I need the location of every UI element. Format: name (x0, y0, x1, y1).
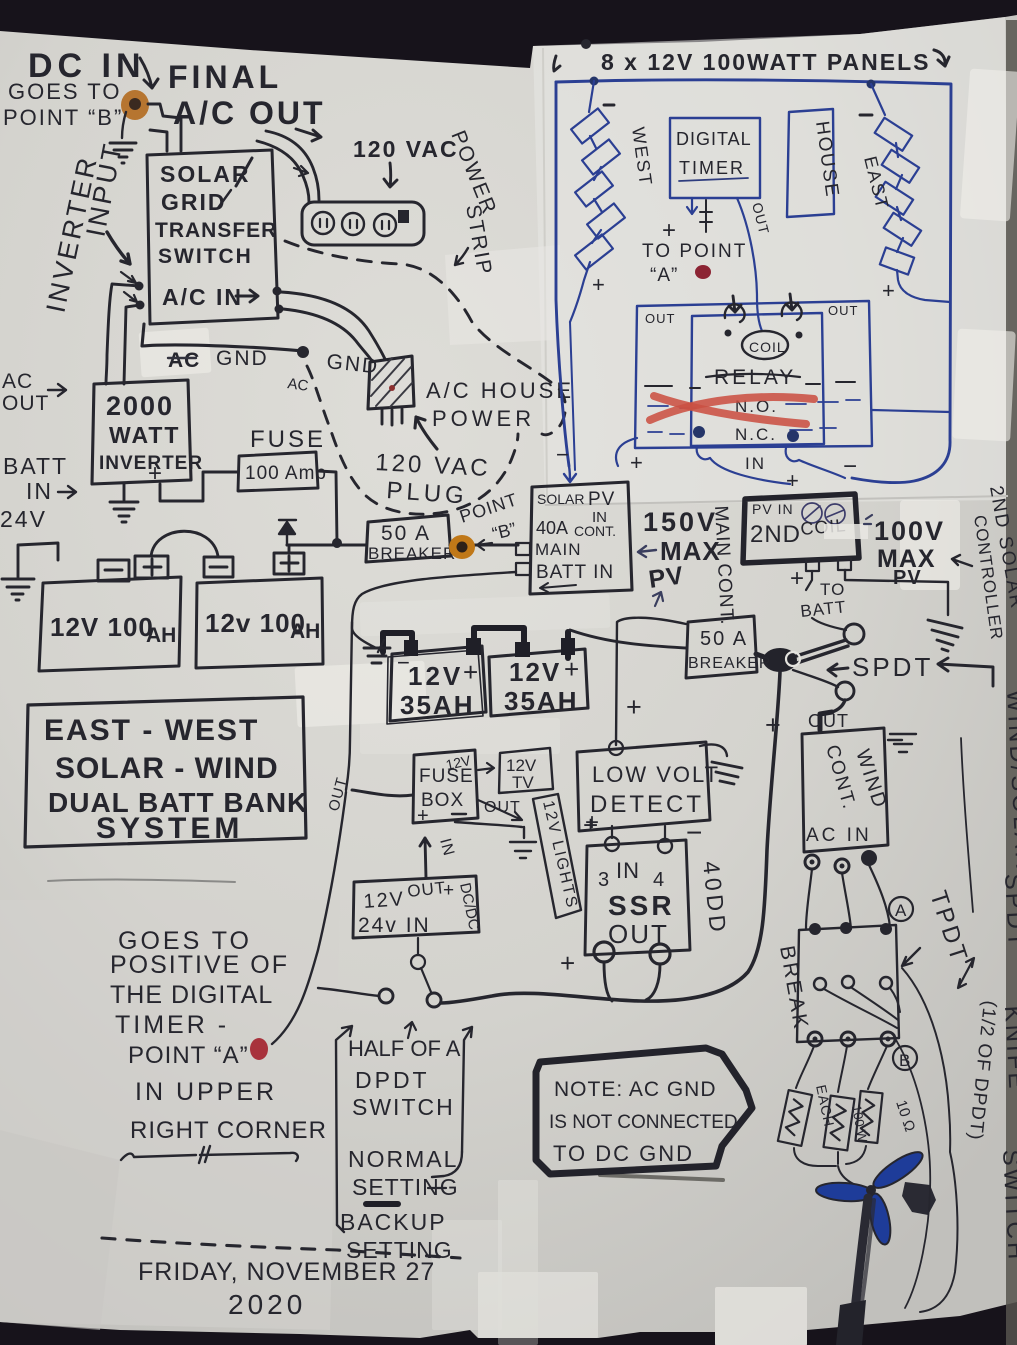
svg-text:+: + (592, 272, 605, 297)
svg-text:BREAKER: BREAKER (688, 655, 771, 672)
svg-text:DETECT: DETECT (590, 791, 704, 818)
svg-text:4: 4 (653, 869, 664, 891)
svg-text:IN UPPER: IN UPPER (135, 1078, 277, 1106)
svg-text:FUSE: FUSE (250, 426, 326, 453)
svg-text:2000: 2000 (106, 391, 174, 421)
svg-text:PV: PV (647, 561, 686, 594)
svg-text:12V 100: 12V 100 (50, 612, 154, 642)
svg-text:50 A: 50 A (381, 522, 431, 545)
svg-text:+: + (585, 809, 599, 836)
svg-text:A/C IN: A/C IN (162, 284, 243, 310)
svg-text:150V: 150V (643, 507, 718, 537)
svg-text:+: + (790, 565, 804, 592)
svg-text:PLUG: PLUG (386, 477, 469, 510)
svg-text:+: + (662, 217, 676, 244)
svg-text:AH: AH (290, 620, 320, 643)
svg-text:SSR: SSR (608, 890, 675, 921)
svg-text:THE DIGITAL: THE DIGITAL (110, 981, 273, 1009)
svg-text:GOES TO: GOES TO (8, 79, 121, 104)
svg-text:AC: AC (2, 370, 33, 393)
svg-text:IN: IN (616, 858, 640, 883)
svg-text:HALF OF A: HALF OF A (348, 1036, 461, 1061)
svg-text:+: + (463, 657, 478, 687)
svg-text:SWITCH: SWITCH (352, 1094, 455, 1120)
svg-text:TIMER: TIMER (679, 158, 745, 178)
svg-text:100V: 100V (874, 516, 945, 546)
svg-text:120 VAC: 120 VAC (353, 136, 459, 162)
svg-text:POSITIVE OF: POSITIVE OF (110, 951, 289, 979)
svg-text:IN: IN (745, 454, 766, 473)
svg-text:GND: GND (216, 347, 269, 370)
svg-text:DIGITAL: DIGITAL (676, 129, 752, 149)
svg-text:TO POINT: TO POINT (642, 241, 747, 262)
svg-text:−: − (843, 453, 857, 480)
svg-text:PV IN: PV IN (752, 501, 794, 517)
svg-text:SWITCH: SWITCH (158, 245, 253, 268)
svg-text:+: + (560, 948, 575, 978)
svg-text:A/C OUT: A/C OUT (173, 95, 326, 131)
svg-text:24V: 24V (0, 506, 47, 532)
svg-text:TV: TV (512, 773, 534, 792)
svg-text:IS NOT CONNECTED: IS NOT CONNECTED (549, 1112, 738, 1133)
svg-text:+: + (417, 805, 429, 827)
svg-text:IN: IN (26, 478, 53, 504)
svg-text:PV: PV (893, 567, 922, 589)
svg-text:GRID: GRID (161, 189, 227, 215)
svg-text:24v IN: 24v IN (358, 914, 431, 937)
svg-text:TO DC GND: TO DC GND (553, 1141, 694, 1166)
svg-text:WATT: WATT (109, 422, 180, 448)
svg-text:+: + (882, 278, 895, 303)
svg-text:BACKUP: BACKUP (340, 1209, 447, 1235)
svg-text:EAST - WEST: EAST - WEST (44, 714, 259, 747)
svg-text:RELAY: RELAY (714, 366, 796, 389)
svg-text:BREAKER: BREAKER (368, 544, 456, 563)
svg-text:OUT: OUT (808, 711, 849, 731)
svg-text:MAIN: MAIN (535, 540, 582, 559)
svg-text:SOLAR - WIND: SOLAR - WIND (55, 752, 279, 785)
svg-text:COIL: COIL (749, 339, 786, 355)
svg-text:POINT “A”: POINT “A” (128, 1042, 249, 1069)
svg-text:A: A (895, 901, 907, 920)
svg-text:100 Amp: 100 Amp (245, 463, 327, 484)
svg-text:NORMAL: NORMAL (348, 1146, 458, 1172)
svg-text:POINT “B”: POINT “B” (3, 105, 123, 130)
svg-text:OUT: OUT (645, 311, 675, 326)
svg-text:FINAL: FINAL (168, 59, 282, 95)
svg-text:FRIDAY, NOVEMBER 27: FRIDAY, NOVEMBER 27 (138, 1258, 435, 1286)
svg-text:“A”: “A” (650, 265, 678, 286)
svg-text:35AH: 35AH (400, 690, 474, 720)
svg-text:SPDT: SPDT (852, 652, 933, 682)
svg-text:TO: TO (820, 580, 845, 599)
svg-text:40A: 40A (536, 518, 568, 538)
svg-text:+: + (630, 450, 643, 475)
svg-text:2020: 2020 (228, 1289, 306, 1320)
svg-text:TIMER -: TIMER - (115, 1011, 229, 1039)
svg-text:TRANSFER: TRANSFER (155, 219, 277, 242)
svg-text:50 A: 50 A (700, 628, 748, 650)
svg-text:PV: PV (588, 489, 615, 510)
svg-text:SYSTEM: SYSTEM (96, 812, 243, 845)
svg-text:8 x 12V 100WATT PANELS: 8 x 12V 100WATT PANELS (601, 49, 930, 75)
svg-text:35AH: 35AH (504, 686, 578, 716)
svg-text:BATT IN: BATT IN (536, 562, 614, 583)
svg-text:AC IN: AC IN (806, 825, 872, 846)
svg-text:DPDT: DPDT (355, 1067, 430, 1093)
svg-text:OUT: OUT (828, 303, 858, 318)
svg-text:SOLAR: SOLAR (537, 491, 584, 507)
svg-text:OUT: OUT (2, 392, 49, 415)
svg-text:NOTE: AC GND: NOTE: AC GND (554, 1078, 717, 1101)
svg-text:2ND: 2ND (750, 521, 801, 548)
svg-text:+: + (765, 710, 781, 740)
svg-text:LOW VOLT: LOW VOLT (592, 762, 720, 787)
svg-text:−: − (686, 817, 702, 848)
svg-text:+: + (443, 880, 454, 901)
svg-text:3: 3 (598, 869, 609, 891)
svg-text:OUT: OUT (406, 878, 447, 901)
svg-text:+: + (626, 692, 642, 722)
svg-text:A/C HOUSE: A/C HOUSE (426, 378, 574, 403)
svg-text:12V: 12V (408, 661, 463, 691)
svg-text:AC: AC (168, 349, 200, 372)
svg-text:BATT: BATT (3, 453, 68, 479)
svg-text:AH: AH (146, 624, 176, 647)
svg-text:MAX: MAX (660, 536, 721, 566)
svg-text:−: − (556, 442, 569, 467)
svg-text:AC: AC (286, 375, 309, 395)
svg-text:N.C.: N.C. (735, 425, 777, 444)
svg-text:+: + (786, 468, 799, 493)
svg-text:CONT.: CONT. (574, 523, 616, 539)
svg-text:12V: 12V (363, 888, 406, 913)
svg-text:POWER: POWER (432, 406, 535, 431)
svg-text:RIGHT CORNER: RIGHT CORNER (130, 1117, 327, 1144)
svg-text:12V: 12V (509, 657, 561, 687)
